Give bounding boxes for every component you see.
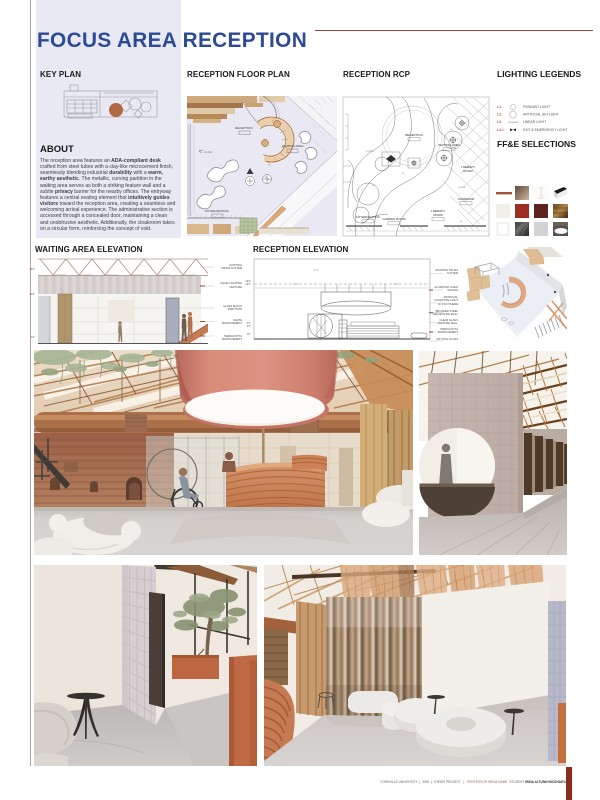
svg-text:L1.: L1. xyxy=(497,105,502,109)
svg-text:FOYER/WAITING: FOYER/WAITING xyxy=(356,215,381,219)
svg-text:CORRIDOR: CORRIDOR xyxy=(458,197,475,201)
svg-text:WAITING AREA: WAITING AREA xyxy=(438,143,460,147)
svg-text:RECEPTION: RECEPTION xyxy=(405,133,423,137)
svg-text:RECEPTION: RECEPTION xyxy=(235,126,253,130)
svg-text:ROOM: ROOM xyxy=(433,213,443,217)
svg-text:ARTIFICIAL SKYLIGHT: ARTIFICIAL SKYLIGHT xyxy=(523,113,559,117)
svg-text:FOYER/WAITING: FOYER/WAITING xyxy=(205,209,230,213)
svg-text:LINEAR LIGHT: LINEAR LIGHT xyxy=(523,120,546,124)
svg-text:EXIT & EMERGENCY LIGHT: EXIT & EMERGENCY LIGHT xyxy=(523,128,567,132)
svg-text:GARDEN ROOM: GARDEN ROOM xyxy=(382,217,406,221)
svg-text:L3.: L3. xyxy=(497,120,502,124)
svg-text:L2.: L2. xyxy=(497,113,502,117)
svg-text:L4 18'6": L4 18'6" xyxy=(458,187,466,189)
svg-text:PENDANT LIGHT: PENDANT LIGHT xyxy=(523,105,550,109)
svg-text:L4.1.: L4.1. xyxy=(497,128,505,132)
svg-text:L3 18'6": L3 18'6" xyxy=(366,151,374,153)
svg-text:WAITING AREA: WAITING AREA xyxy=(282,144,304,148)
svg-text:ROOM: ROOM xyxy=(463,169,473,173)
svg-text:1A-101: 1A-101 xyxy=(204,150,213,154)
